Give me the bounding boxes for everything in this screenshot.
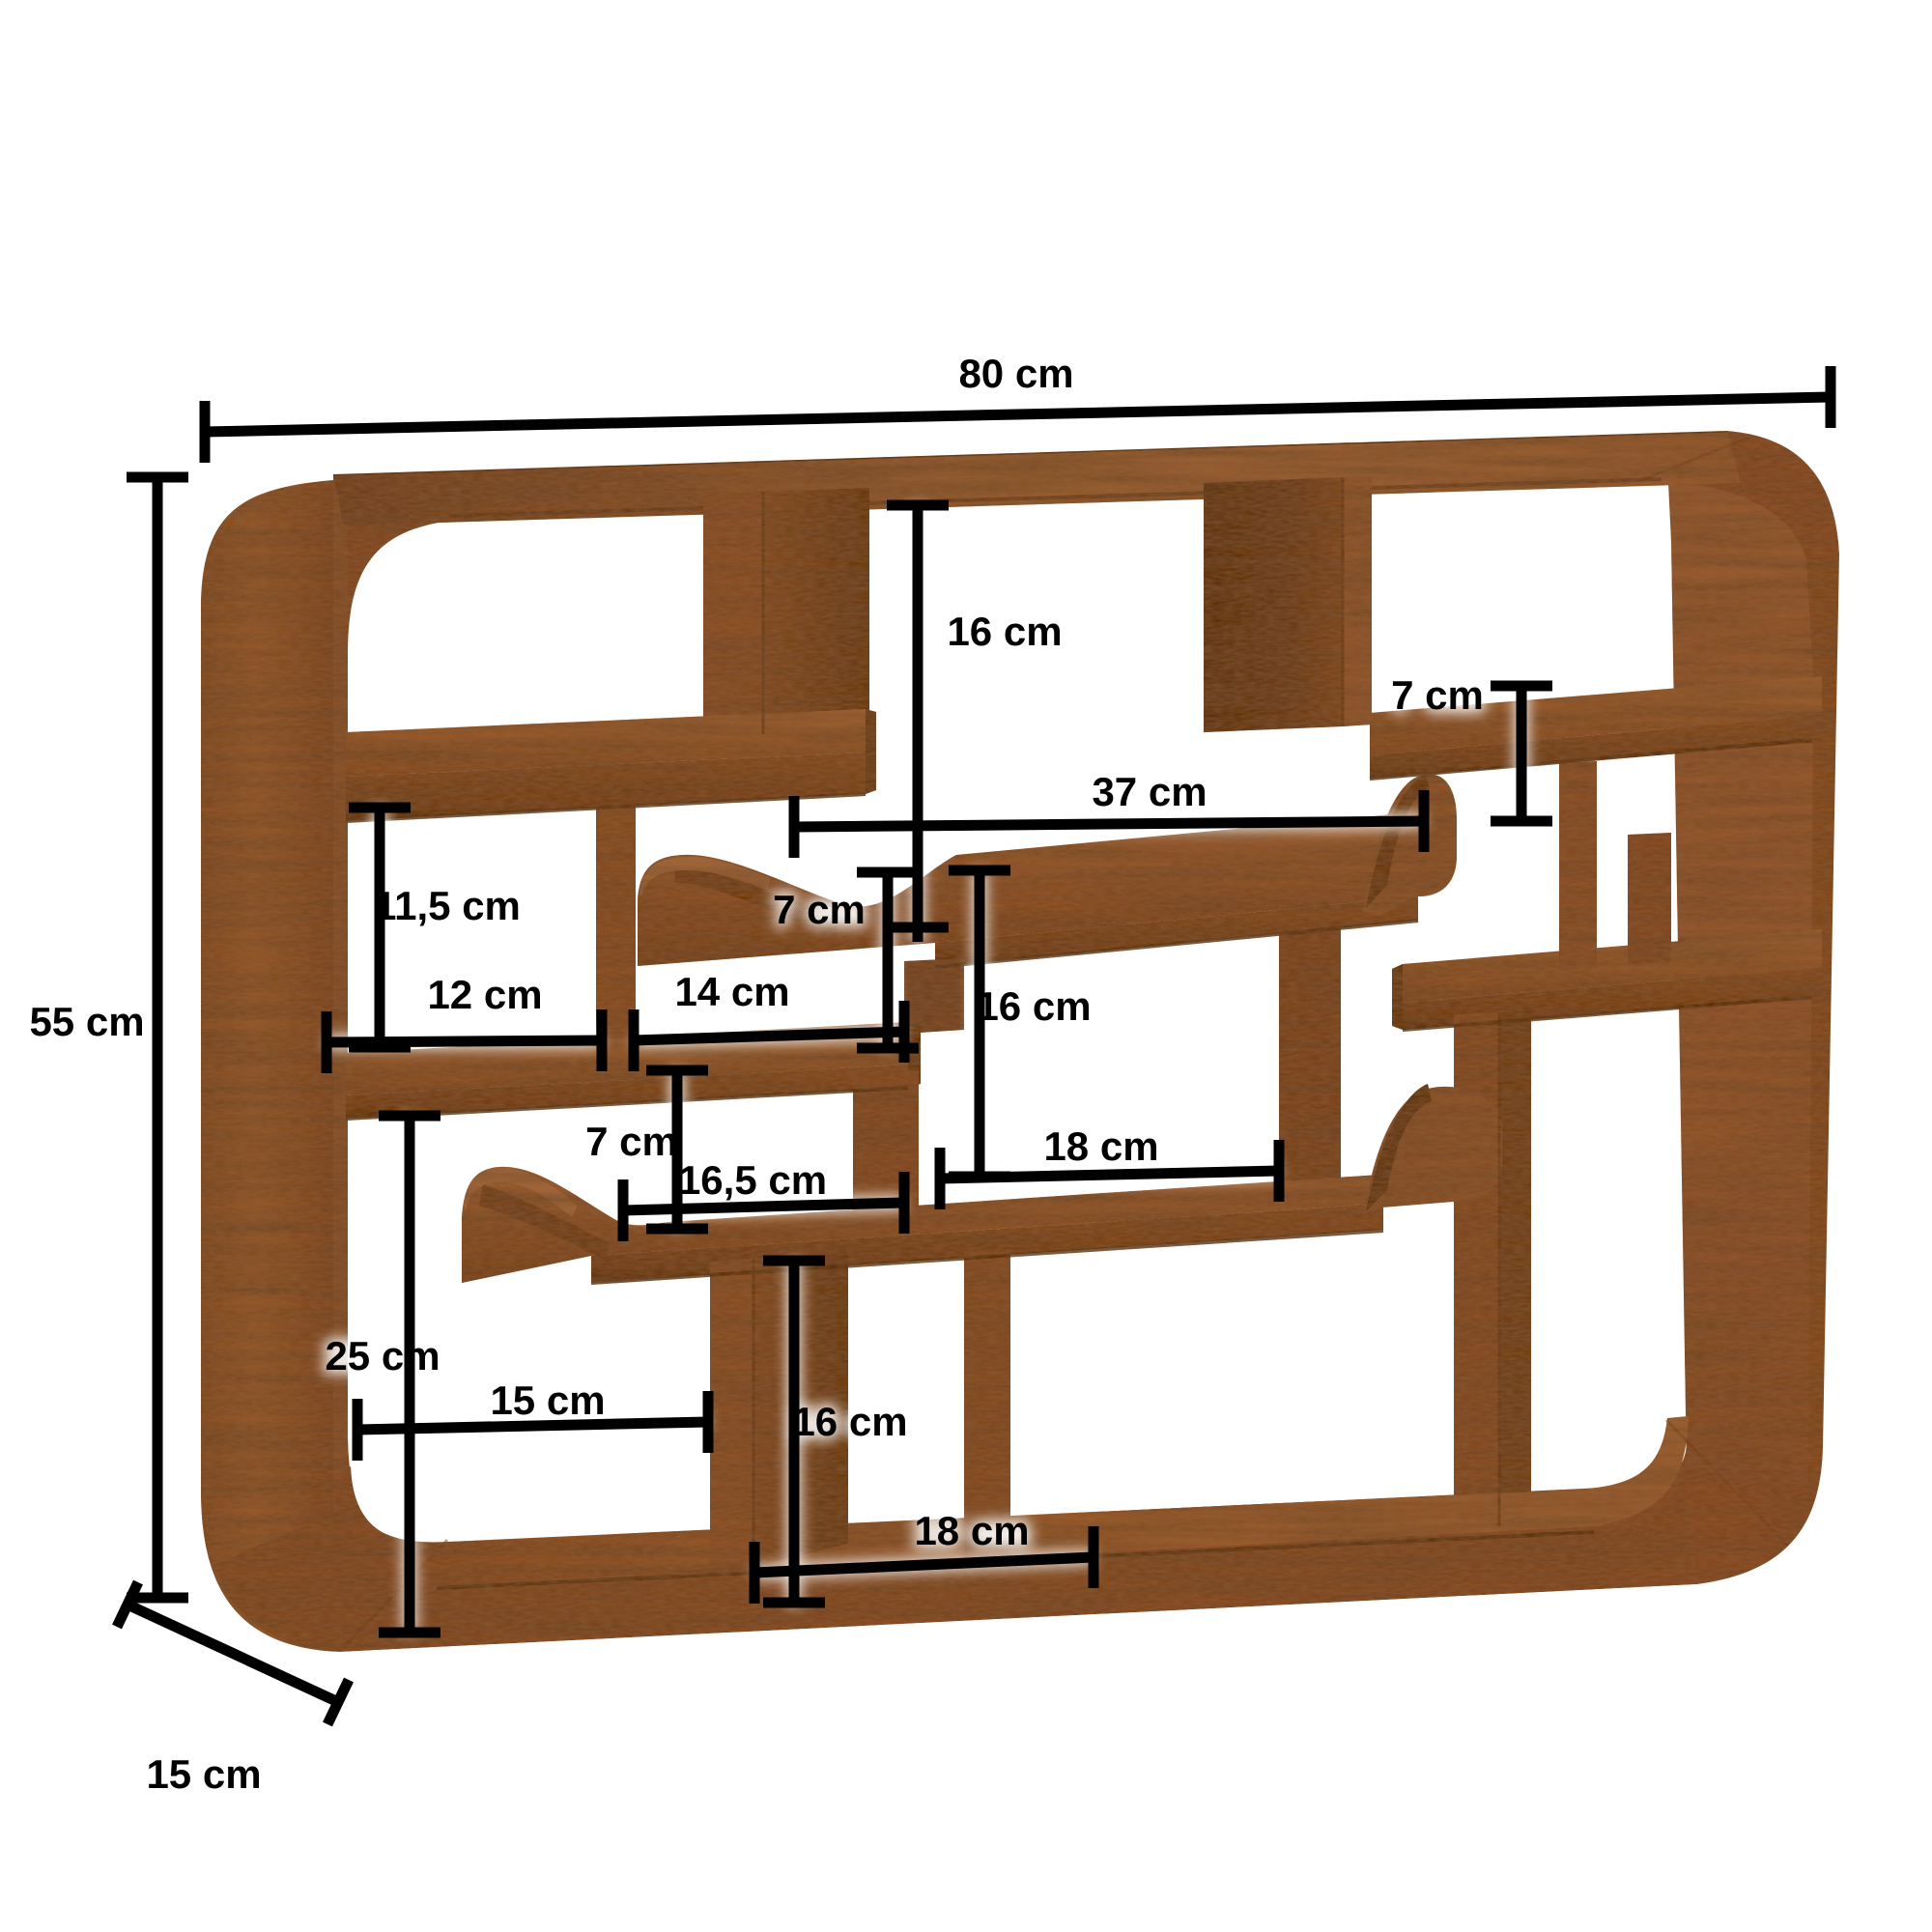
- svg-text:16 cm: 16 cm: [792, 1399, 907, 1444]
- svg-text:15 cm: 15 cm: [490, 1378, 605, 1423]
- svg-text:12 cm: 12 cm: [427, 972, 542, 1017]
- svg-text:55 cm: 55 cm: [29, 999, 144, 1044]
- svg-text:25 cm: 25 cm: [325, 1333, 440, 1378]
- svg-text:14 cm: 14 cm: [674, 969, 789, 1014]
- svg-text:37 cm: 37 cm: [1092, 769, 1207, 814]
- svg-text:80 cm: 80 cm: [958, 351, 1073, 396]
- svg-text:7 cm: 7 cm: [773, 887, 866, 932]
- svg-text:7 cm: 7 cm: [1391, 672, 1484, 718]
- svg-text:18 cm: 18 cm: [914, 1508, 1029, 1553]
- svg-text:16,5 cm: 16,5 cm: [678, 1157, 827, 1203]
- svg-text:16 cm: 16 cm: [947, 609, 1062, 654]
- svg-text:11,5 cm: 11,5 cm: [374, 883, 521, 928]
- svg-text:16 cm: 16 cm: [976, 983, 1091, 1029]
- svg-text:18 cm: 18 cm: [1043, 1123, 1158, 1169]
- svg-text:15 cm: 15 cm: [146, 1751, 261, 1797]
- svg-text:7 cm: 7 cm: [585, 1119, 678, 1164]
